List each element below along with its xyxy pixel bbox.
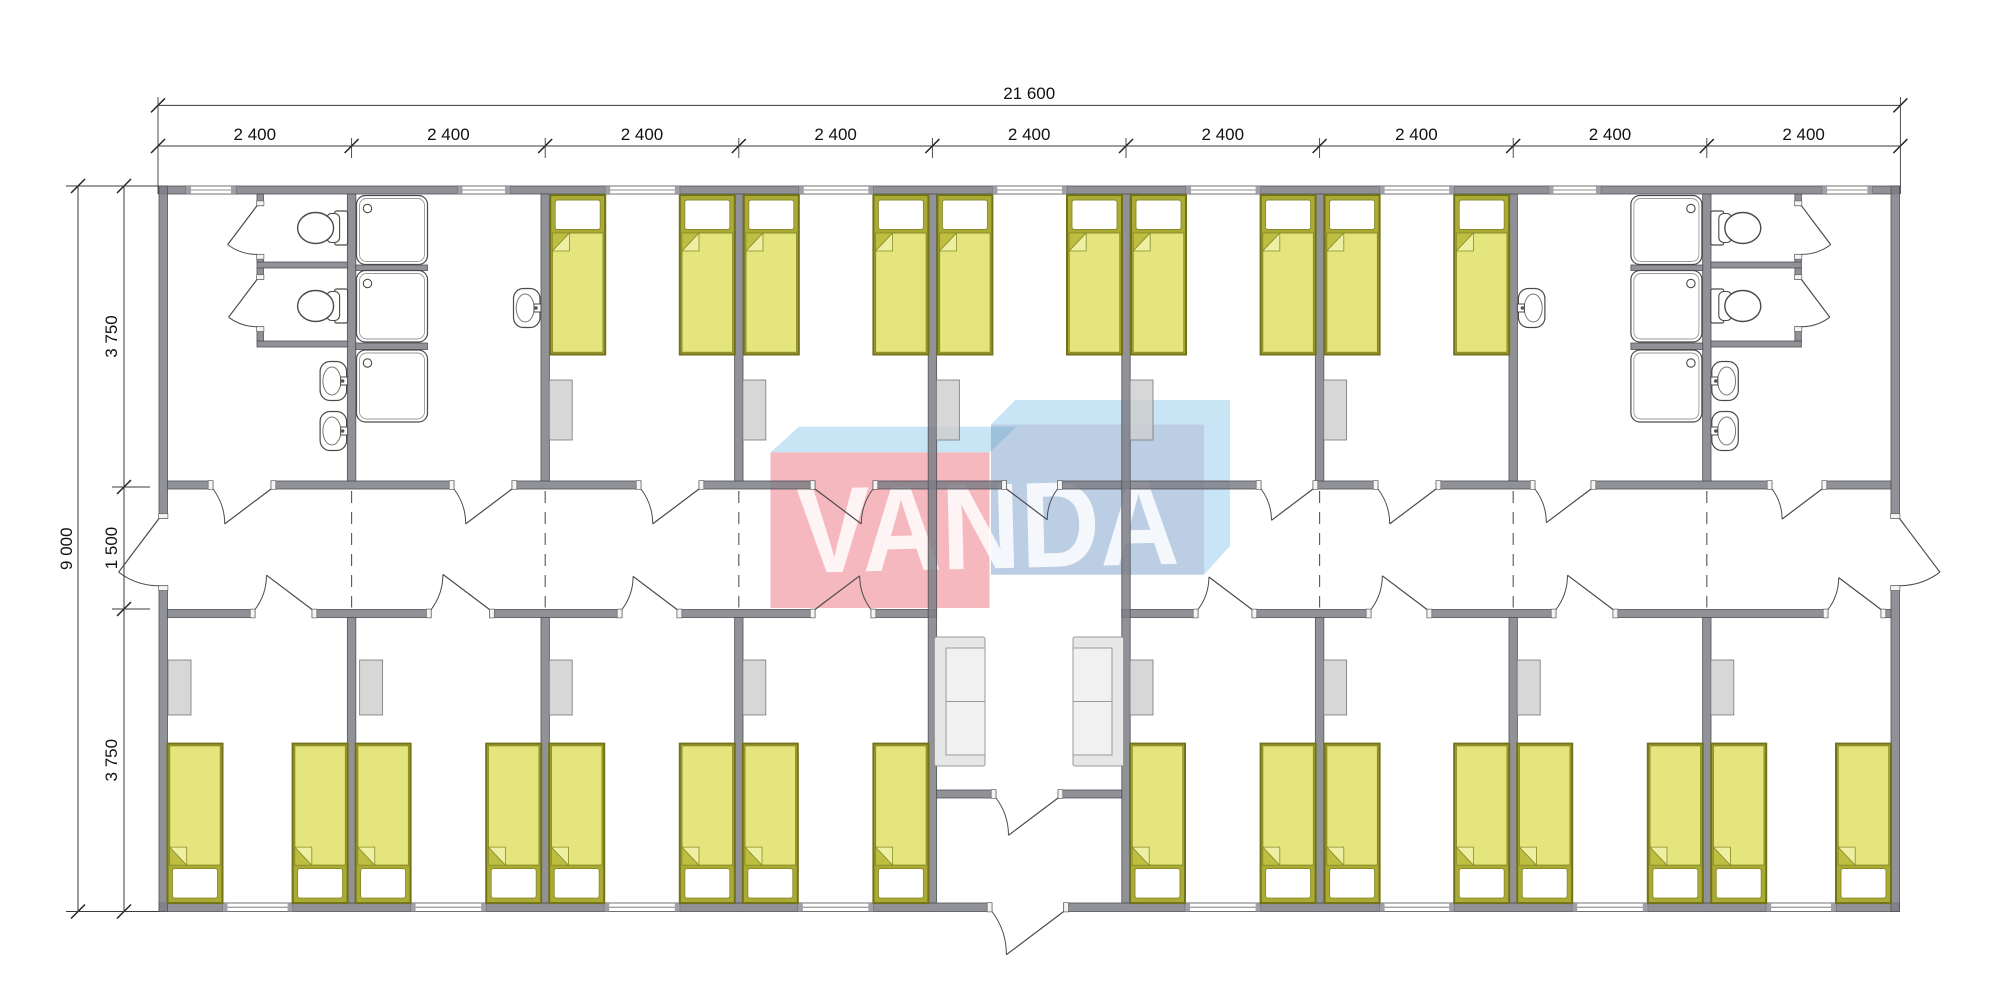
svg-text:2 400: 2 400 [814,125,857,144]
svg-text:21 600: 21 600 [1003,84,1055,103]
svg-text:9 000: 9 000 [57,527,76,570]
svg-text:2 400: 2 400 [1395,125,1438,144]
svg-text:2 400: 2 400 [621,125,664,144]
svg-text:2 400: 2 400 [1202,125,1245,144]
svg-text:2 400: 2 400 [1782,125,1825,144]
svg-text:2 400: 2 400 [1589,125,1632,144]
svg-text:2 400: 2 400 [234,125,277,144]
svg-text:3 750: 3 750 [102,739,121,782]
svg-text:3 750: 3 750 [102,315,121,358]
svg-text:2 400: 2 400 [1008,125,1051,144]
svg-text:2 400: 2 400 [427,125,470,144]
svg-text:1 500: 1 500 [102,527,121,570]
